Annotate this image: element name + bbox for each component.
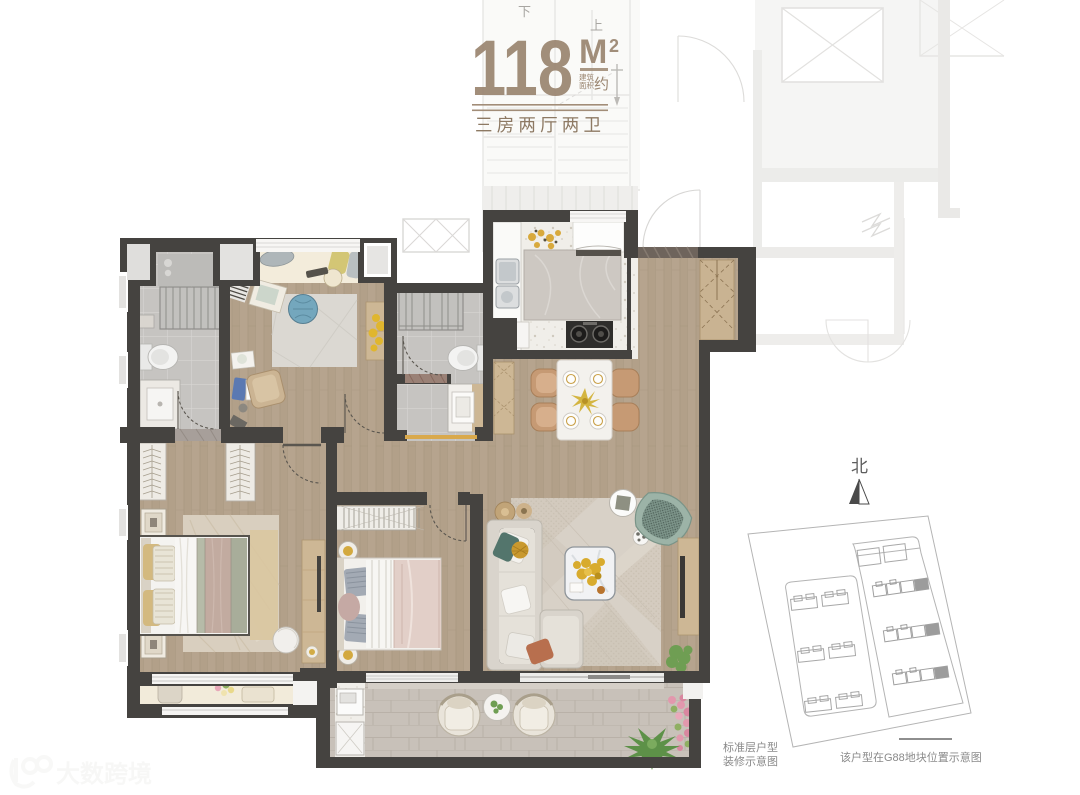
svg-text:标准层户型: 标准层户型	[723, 740, 778, 754]
svg-text:面积: 面积	[579, 80, 594, 90]
svg-text:装修示意图: 装修示意图	[723, 754, 778, 768]
svg-text:118: 118	[471, 23, 573, 112]
svg-text:上: 上	[590, 18, 603, 33]
svg-text:北: 北	[851, 457, 868, 476]
svg-text:M: M	[579, 33, 607, 71]
svg-text:三房两厅两卫: 三房两厅两卫	[475, 115, 605, 135]
svg-text:2: 2	[609, 36, 619, 56]
svg-text:大数跨境: 大数跨境	[56, 760, 152, 788]
svg-text:约: 约	[594, 76, 609, 93]
svg-text:该户型在G88地块位置示意图: 该户型在G88地块位置示意图	[840, 750, 982, 764]
svg-text:下: 下	[518, 4, 531, 19]
